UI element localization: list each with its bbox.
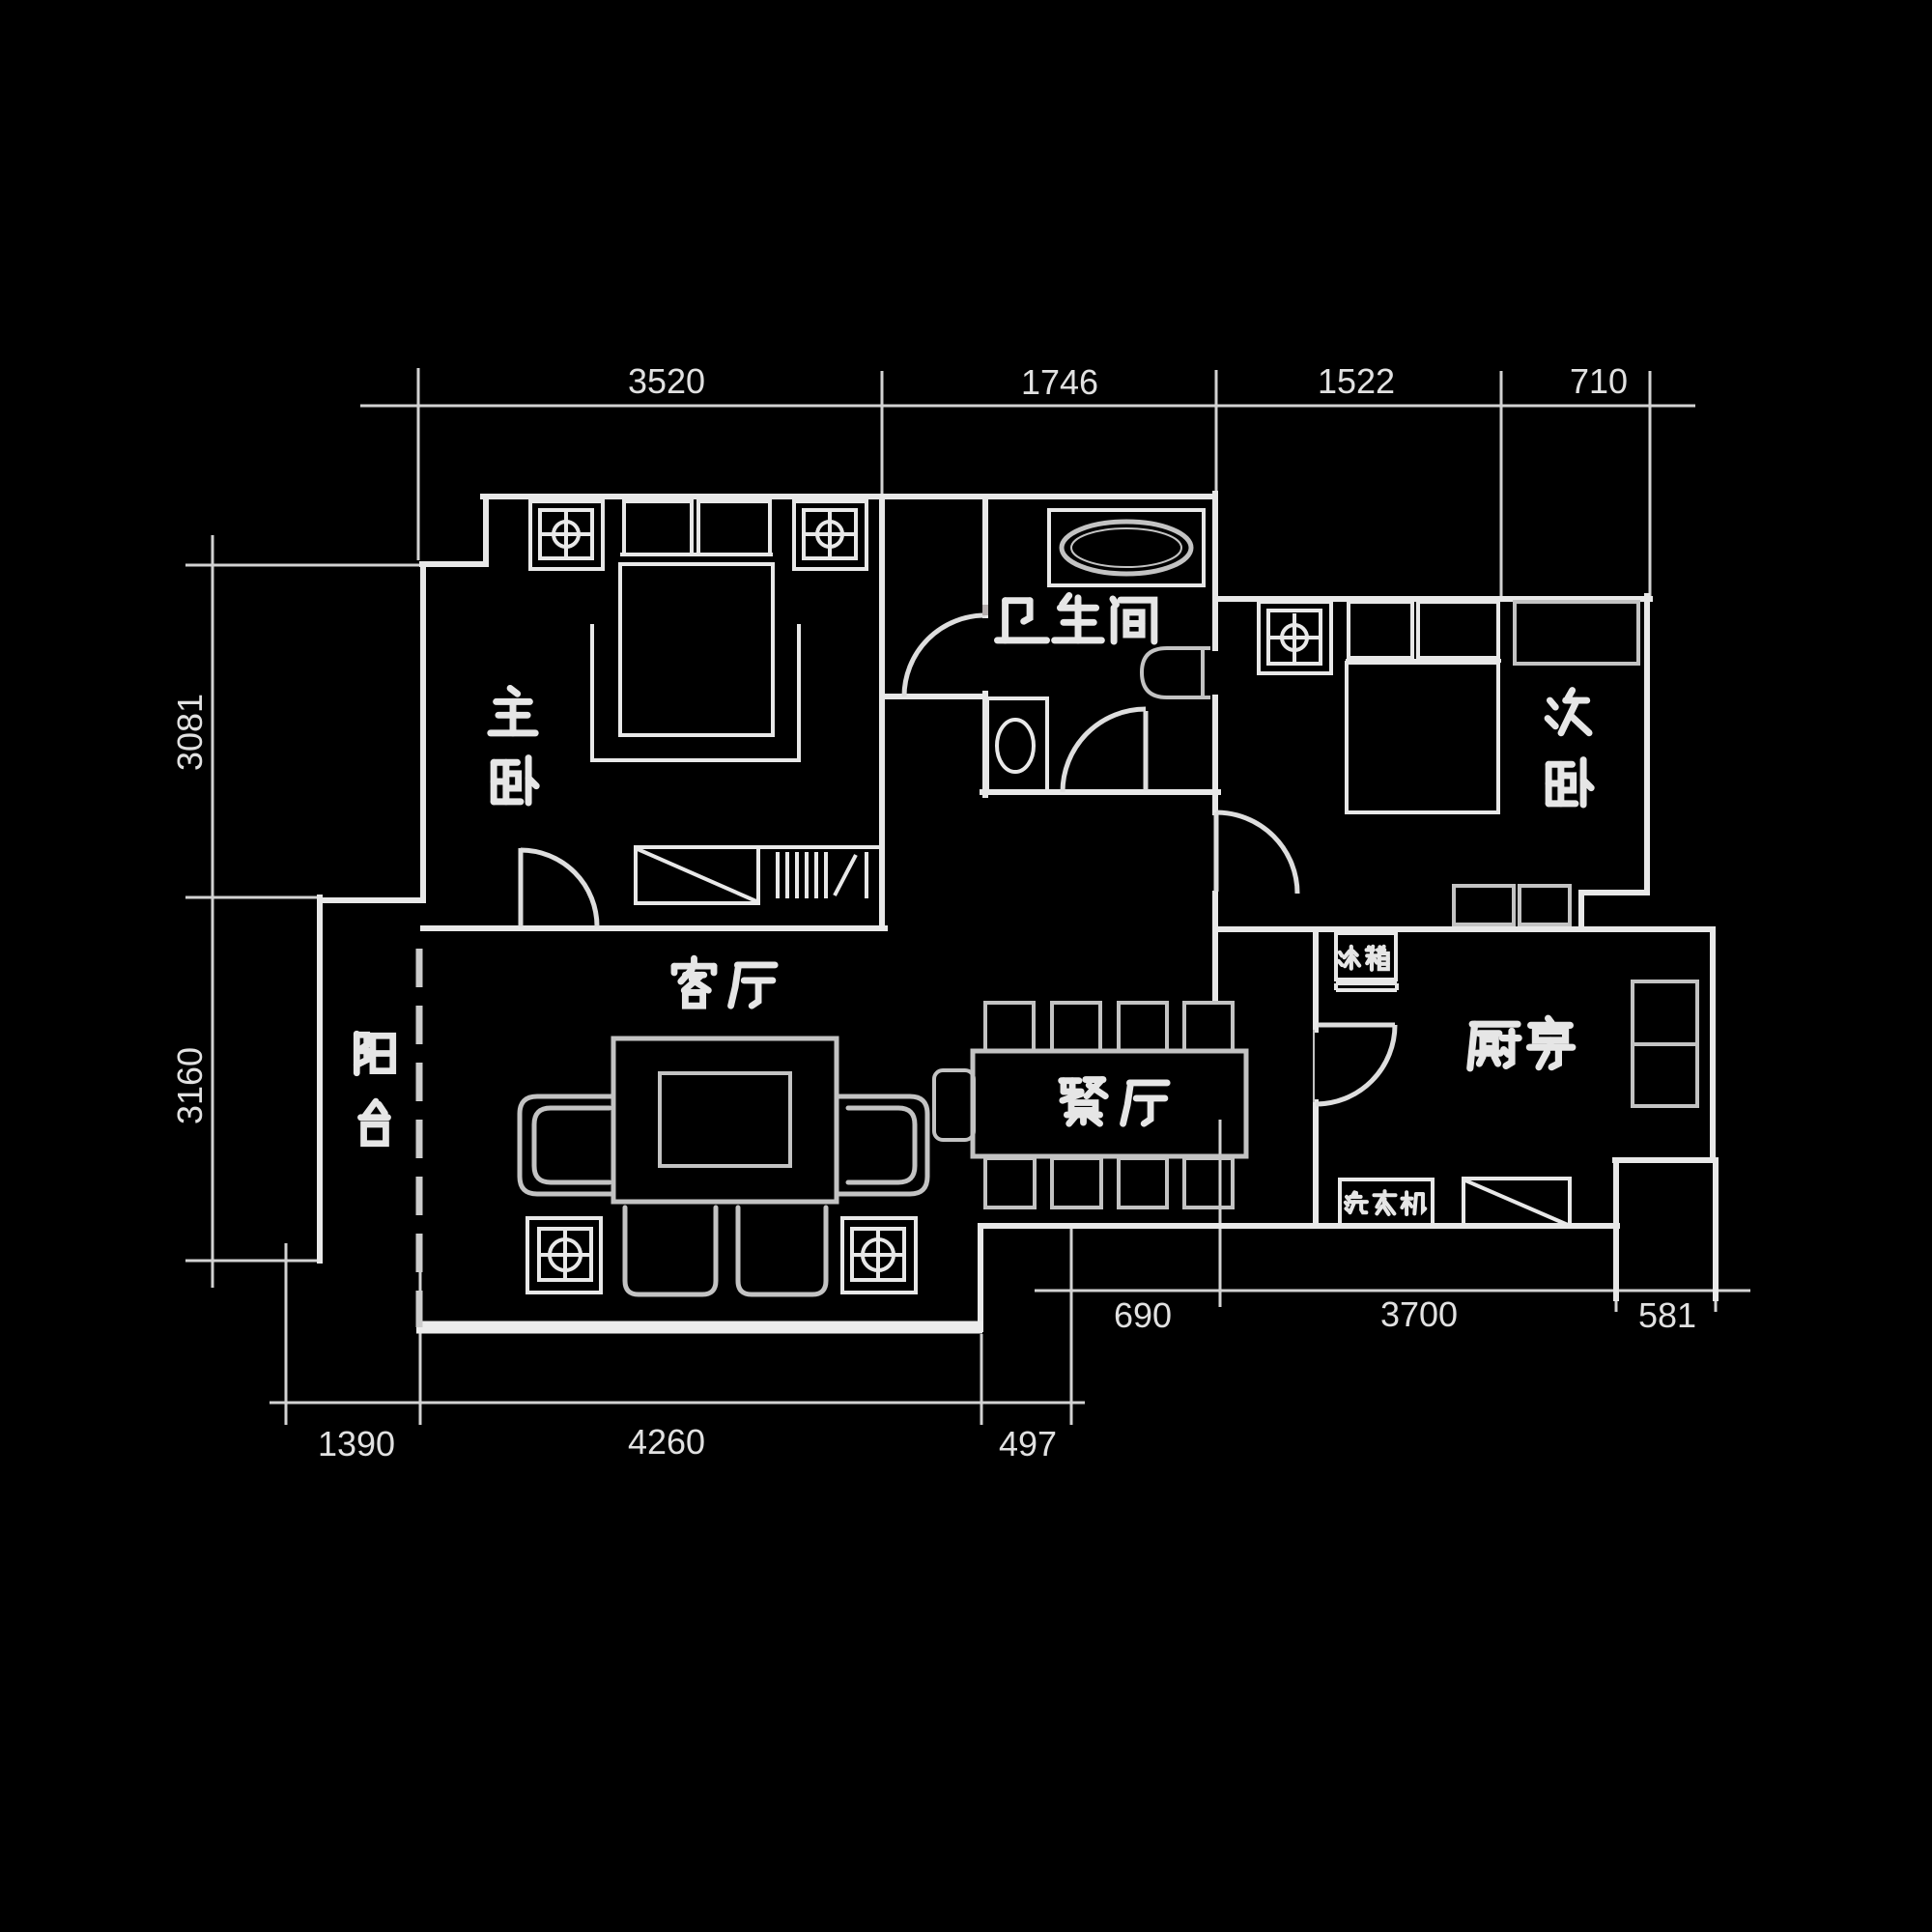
svg-text:497: 497 — [999, 1424, 1057, 1463]
svg-text:1390: 1390 — [318, 1424, 395, 1463]
svg-text:3700: 3700 — [1380, 1294, 1458, 1334]
svg-text:3520: 3520 — [628, 361, 705, 401]
svg-text:690: 690 — [1114, 1295, 1172, 1335]
svg-text:4260: 4260 — [628, 1422, 705, 1462]
svg-text:3081: 3081 — [170, 694, 210, 771]
svg-text:710: 710 — [1570, 361, 1628, 401]
svg-text:3160: 3160 — [170, 1047, 210, 1124]
svg-text:1522: 1522 — [1318, 361, 1395, 401]
svg-text:1746: 1746 — [1021, 362, 1098, 402]
svg-text:581: 581 — [1638, 1295, 1696, 1335]
